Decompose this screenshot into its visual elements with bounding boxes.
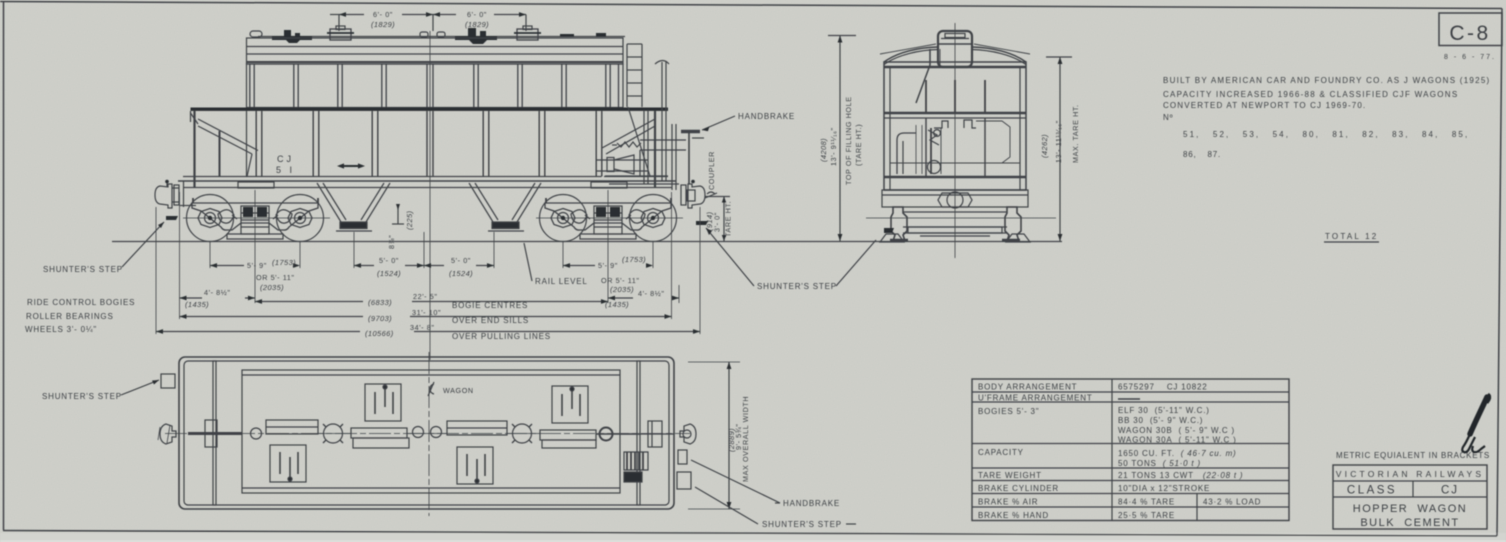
svg-text:4'- 8½": 4'- 8½" xyxy=(204,288,231,297)
svg-text:CLASS: CLASS xyxy=(1347,485,1397,497)
svg-text:6'- 0": 6'- 0" xyxy=(467,10,487,19)
svg-text:MAX. TARE HT.: MAX. TARE HT. xyxy=(1071,104,1080,163)
svg-text:6575297 CJ 10822: 6575297 CJ 10822 xyxy=(1118,383,1207,392)
svg-text:OVER END SILLS: OVER END SILLS xyxy=(452,316,529,325)
svg-text:SHUNTER'S STEP: SHUNTER'S STEP xyxy=(757,282,837,291)
svg-text:13'- 9¹¹⁄₁₆": 13'- 9¹¹⁄₁₆" xyxy=(829,127,838,166)
svg-text:WAGON 30A ( 5'-11" W.C ): WAGON 30A ( 5'-11" W.C ) xyxy=(1118,436,1237,445)
svg-text:BOGIES 5'- 3": BOGIES 5'- 3" xyxy=(978,407,1039,416)
svg-text:(10566): (10566) xyxy=(365,329,394,338)
svg-text:HOPPER WAGON: HOPPER WAGON xyxy=(1353,503,1467,515)
svg-text:(2035): (2035) xyxy=(260,283,284,292)
svg-text:RIDE CONTROL BOGIES: RIDE CONTROL BOGIES xyxy=(27,298,135,307)
svg-text:21 TONS 13 CWT (22·08 t ): 21 TONS 13 CWT (22·08 t ) xyxy=(1118,471,1243,480)
svg-text:(225): (225) xyxy=(405,210,414,230)
svg-text:BODY ARRANGEMENT: BODY ARRANGEMENT xyxy=(978,383,1077,392)
svg-text:84·4 % TARE: 84·4 % TARE xyxy=(1118,498,1175,507)
svg-text:3'- 0": 3'- 0" xyxy=(713,212,722,232)
svg-text:WAGON: WAGON xyxy=(443,386,474,395)
svg-text:86, 87.: 86, 87. xyxy=(1183,150,1221,159)
svg-text:BRAKE CYLINDER: BRAKE CYLINDER xyxy=(978,484,1059,493)
svg-text:WAGON 30B ( 5'- 9" W.C ): WAGON 30B ( 5'- 9" W.C ) xyxy=(1118,426,1235,435)
svg-text:4'- 8½": 4'- 8½" xyxy=(638,289,665,298)
svg-text:OR 5'- 11": OR 5'- 11" xyxy=(601,276,640,285)
svg-text:(2035): (2035) xyxy=(610,285,634,294)
svg-text:(1829): (1829) xyxy=(371,20,395,29)
svg-text:6'- 0": 6'- 0" xyxy=(373,10,393,19)
svg-text:TOTAL 12: TOTAL 12 xyxy=(1325,232,1377,241)
svg-text:(1524): (1524) xyxy=(449,269,473,278)
svg-text:OR 5'- 11": OR 5'- 11" xyxy=(256,273,295,282)
svg-text:5'- 0": 5'- 0" xyxy=(379,256,399,265)
svg-text:34'- 8": 34'- 8" xyxy=(410,323,435,332)
svg-text:OVER PULLING LINES: OVER PULLING LINES xyxy=(452,332,551,341)
svg-text:8⅞": 8⅞" xyxy=(387,235,396,249)
svg-text:BRAKE % HAND: BRAKE % HAND xyxy=(978,511,1049,520)
svg-text:(6833): (6833) xyxy=(368,298,392,307)
svg-text:50 TONS ( 51·0 t ): 50 TONS ( 51·0 t ) xyxy=(1118,459,1201,468)
svg-text:MAX OVERALL WIDTH: MAX OVERALL WIDTH xyxy=(741,396,750,482)
svg-text:CONVERTED AT NEWPORT TO CJ 196: CONVERTED AT NEWPORT TO CJ 1969-70. xyxy=(1163,101,1366,110)
svg-text:CJ: CJ xyxy=(1441,485,1459,497)
svg-text:5 I: 5 I xyxy=(276,165,295,175)
svg-text:WHEELS 3'- 0¼": WHEELS 3'- 0¼" xyxy=(25,325,97,334)
svg-text:TARE HT.: TARE HT. xyxy=(724,201,733,237)
svg-text:BRAKE % AIR: BRAKE % AIR xyxy=(978,498,1038,507)
svg-text:5'- 9": 5'- 9" xyxy=(247,261,267,270)
svg-text:22'- 5": 22'- 5" xyxy=(413,292,438,301)
svg-text:(4262): (4262) xyxy=(1040,134,1049,158)
svg-text:VICTORIAN RAILWAYS: VICTORIAN RAILWAYS xyxy=(1336,469,1484,479)
svg-text:(9703): (9703) xyxy=(368,314,392,323)
svg-text:TARE WEIGHT: TARE WEIGHT xyxy=(978,471,1042,480)
svg-text:BULK CEMENT: BULK CEMENT xyxy=(1360,517,1459,529)
svg-text:CJ: CJ xyxy=(277,154,294,164)
svg-text:(1753): (1753) xyxy=(272,258,296,267)
svg-text:BOGIE CENTRES: BOGIE CENTRES xyxy=(452,301,528,310)
svg-text:SHUNTER'S STEP: SHUNTER'S STEP xyxy=(42,392,122,401)
svg-text:1650 CU. FT. ( 46·7 cu. m): 1650 CU. FT. ( 46·7 cu. m) xyxy=(1118,449,1237,458)
svg-text:COUPLER: COUPLER xyxy=(707,151,716,190)
svg-text:43·2 % LOAD: 43·2 % LOAD xyxy=(1203,498,1261,507)
svg-text:8 - 6 - 77.: 8 - 6 - 77. xyxy=(1444,54,1496,61)
svg-text:CAPACITY: CAPACITY xyxy=(978,448,1024,457)
svg-text:CAPACITY INCREASED 1966-88 & C: CAPACITY INCREASED 1966-88 & CLASSIFIED … xyxy=(1163,90,1458,99)
svg-text:BUILT BY AMERICAN CAR AND FOUN: BUILT BY AMERICAN CAR AND FOUNDRY CO. AS… xyxy=(1163,76,1490,85)
svg-text:HANDBRAKE: HANDBRAKE xyxy=(783,499,840,508)
svg-text:51, 52, 53, 54, 80, 81, 82, 83: 51, 52, 53, 54, 80, 81, 82, 83, 84, 85, xyxy=(1183,130,1468,139)
svg-text:HANDBRAKE: HANDBRAKE xyxy=(738,112,795,121)
svg-text:25·5 % TARE: 25·5 % TARE xyxy=(1118,511,1175,520)
svg-text:(1753): (1753) xyxy=(622,255,646,264)
svg-text:ROLLER BEARINGS: ROLLER BEARINGS xyxy=(26,312,114,321)
svg-text:(TARE HT.): (TARE HT.) xyxy=(854,124,863,166)
svg-text:(1829): (1829) xyxy=(465,20,489,29)
svg-text:(4208): (4208) xyxy=(819,138,828,162)
svg-text:(1435): (1435) xyxy=(605,300,629,309)
svg-text:(1524): (1524) xyxy=(377,269,401,278)
svg-text:TOP OF FILLING HOLE: TOP OF FILLING HOLE xyxy=(844,96,853,185)
svg-text:10"DIA x 12"STROKE: 10"DIA x 12"STROKE xyxy=(1118,484,1210,493)
svg-text:5'- 9": 5'- 9" xyxy=(598,261,618,270)
svg-text:SHUNTER'S STEP: SHUNTER'S STEP xyxy=(762,520,842,529)
svg-text:ELF 30 (5'-11" W.C.): ELF 30 (5'-11" W.C.) xyxy=(1118,406,1210,415)
svg-text:SHUNTER'S STEP: SHUNTER'S STEP xyxy=(43,265,123,274)
svg-text:BB 30 (5'- 9" W.C.): BB 30 (5'- 9" W.C.) xyxy=(1118,416,1203,425)
svg-text:U'FRAME ARRANGEMENT: U'FRAME ARRANGEMENT xyxy=(978,394,1093,403)
svg-text:13'- 11¹³⁄₁₆": 13'- 11¹³⁄₁₆" xyxy=(1054,120,1063,163)
svg-text:5'- 0": 5'- 0" xyxy=(451,256,471,265)
svg-text:C-8: C-8 xyxy=(1449,22,1490,45)
svg-text:RAIL LEVEL: RAIL LEVEL xyxy=(535,277,588,286)
svg-text:(1435): (1435) xyxy=(185,300,209,309)
svg-text:Nº: Nº xyxy=(1163,113,1173,122)
svg-text:31'- 10": 31'- 10" xyxy=(412,308,441,317)
